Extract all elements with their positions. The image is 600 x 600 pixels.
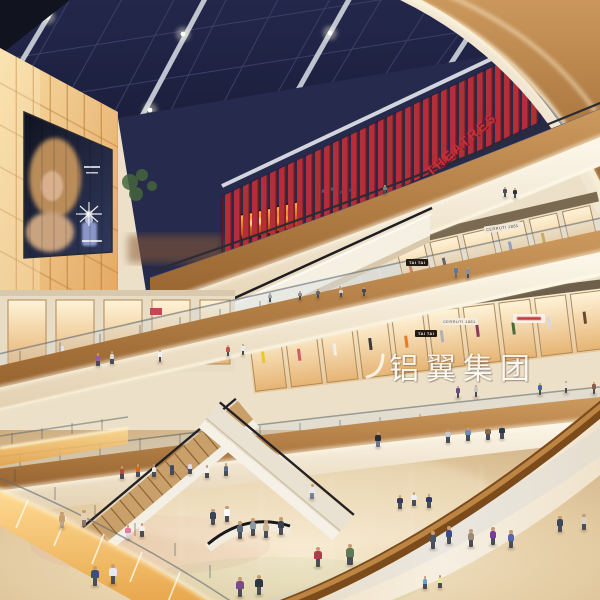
person [223, 463, 230, 476]
person [187, 461, 194, 474]
person [465, 267, 471, 278]
person [445, 429, 452, 443]
person [489, 527, 498, 545]
person [383, 185, 388, 194]
person [362, 287, 367, 296]
person [157, 350, 163, 362]
person [262, 520, 271, 538]
storefront-sign-pink [150, 308, 162, 315]
person [580, 514, 588, 530]
person [503, 187, 508, 197]
person [139, 523, 146, 537]
person [345, 544, 356, 565]
person [591, 382, 597, 394]
person [411, 492, 418, 506]
person [169, 462, 176, 475]
store-sign-taitai-lower: TAI TAI [415, 330, 437, 337]
storefront-sign-red [513, 314, 545, 323]
person [90, 566, 100, 586]
watermark-swoosh-icon [364, 352, 386, 380]
person [556, 516, 564, 532]
person [125, 525, 132, 539]
person [507, 530, 516, 548]
person [563, 381, 569, 393]
person [204, 465, 211, 478]
person [80, 510, 88, 526]
person [445, 526, 454, 544]
store-sign-taitai-upper: TAI TAI [406, 259, 428, 266]
person [223, 506, 231, 522]
person [513, 188, 518, 198]
person [426, 494, 433, 508]
person [119, 466, 126, 479]
person [316, 289, 321, 298]
person [108, 564, 118, 584]
person [374, 432, 382, 447]
watermark: 铝翼集团 [364, 344, 537, 388]
person [308, 484, 316, 499]
person [298, 291, 303, 300]
person [240, 344, 246, 355]
person [109, 351, 116, 364]
person [313, 547, 323, 567]
person [422, 576, 429, 589]
person [453, 266, 459, 277]
person [499, 425, 506, 439]
billboard-model-face [41, 171, 63, 201]
mall-atrium-rendering: THEATRES CERRUTI 1881 CERRUTI 1881 TAI T… [0, 0, 600, 600]
person [151, 464, 158, 477]
person [485, 426, 492, 440]
person [235, 577, 245, 597]
person [429, 531, 438, 549]
person [135, 464, 142, 477]
person [254, 575, 264, 595]
person [249, 518, 258, 536]
person [465, 427, 472, 441]
store-sign-cerruti-lower: CERRUTI 1881 [441, 318, 478, 325]
person [95, 353, 102, 366]
person [277, 517, 286, 535]
person [236, 521, 245, 539]
person [58, 512, 66, 528]
person [467, 529, 476, 547]
person [397, 495, 404, 509]
person [437, 575, 444, 588]
person [209, 509, 217, 525]
person [537, 383, 543, 395]
watermark-text: 铝翼集团 [389, 344, 537, 388]
person [225, 345, 231, 356]
person [339, 288, 344, 297]
person [268, 293, 273, 302]
